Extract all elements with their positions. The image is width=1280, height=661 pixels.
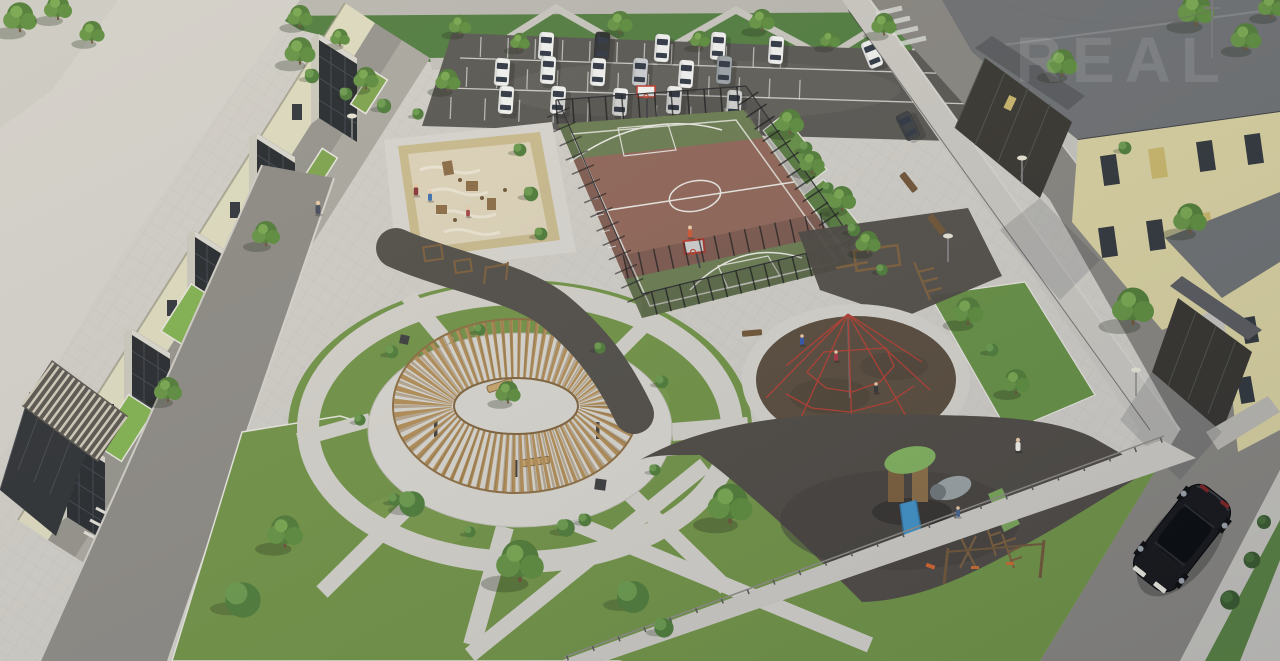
courtyard-render: REAL [0, 0, 1280, 661]
render-stage: REAL [0, 0, 1280, 661]
lighting-overlay [0, 0, 1280, 661]
